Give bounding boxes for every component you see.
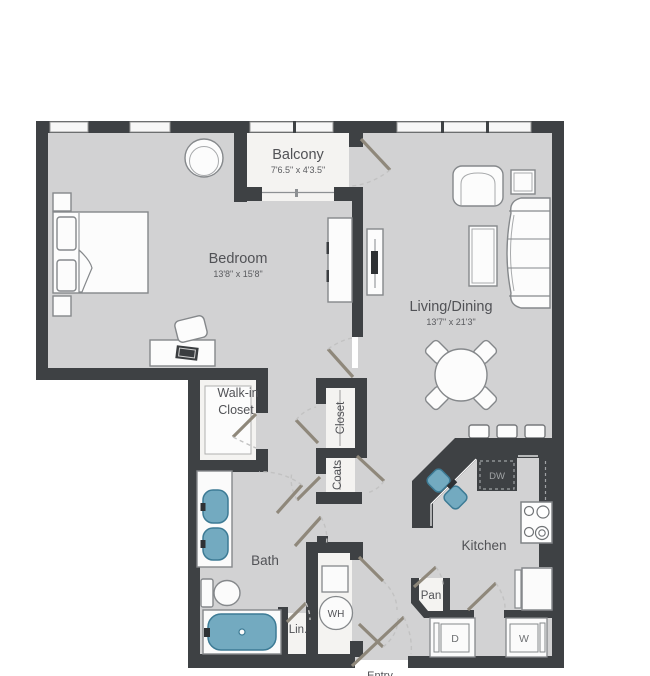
wall-closet-left-stub: [316, 388, 326, 404]
wall-balcony-cap-left: [234, 187, 262, 201]
living-dining-dims: 13'7" x 21'3": [426, 317, 475, 327]
toilet-bowl: [214, 581, 240, 606]
sofa: [507, 198, 550, 308]
window-balcony: [250, 122, 333, 132]
window-living: [397, 122, 531, 132]
bar-stool-3: [525, 425, 545, 438]
coffee-table: [469, 226, 497, 286]
nightstand-bottom: [53, 296, 71, 316]
bedroom-label: Bedroom: [209, 251, 268, 267]
dresser-handle-2: [327, 270, 330, 282]
wall-right: [552, 121, 564, 668]
wall-wh-left: [306, 542, 318, 657]
wall-wic-bottom: [188, 460, 268, 472]
dresser-handle-1: [327, 242, 330, 254]
wh-shelf: [322, 566, 348, 592]
window-living-mullion-1: [441, 121, 444, 133]
bath-sink-2: [203, 528, 228, 560]
dining-set: [424, 339, 498, 411]
pillow-2: [57, 260, 76, 291]
wall-closet-coats-divider: [316, 448, 362, 458]
water-heater-label: WH: [328, 609, 345, 620]
dresser: [328, 218, 352, 302]
round-chair: [185, 139, 223, 177]
bath-sink-1: [203, 490, 228, 523]
window-bedroom-2: [130, 122, 170, 132]
bath-sink-1-faucet: [201, 503, 206, 511]
wall-wh-right-bottom: [350, 641, 363, 657]
window-bedroom-1: [50, 122, 88, 132]
wall-coats-bottom: [316, 492, 362, 504]
nightstand-top: [53, 193, 71, 211]
wall-bottom-right: [408, 656, 564, 668]
walk-in-label-1: Walk-in: [217, 386, 258, 400]
floor-plan-svg: DW D W: [0, 0, 650, 676]
wall-left: [36, 121, 48, 380]
dishwasher-label: DW: [489, 471, 505, 482]
entry-label: Entry: [367, 670, 393, 676]
burner-4: [536, 527, 549, 540]
wall-balcony-right-stub: [349, 121, 363, 147]
dryer-label: D: [451, 633, 459, 645]
burner-3: [525, 528, 534, 537]
window-balcony-mullion: [293, 121, 296, 133]
side-table: [511, 170, 535, 194]
laptop: [175, 345, 198, 361]
refrigerator-door: [515, 570, 521, 608]
walk-in-label-2: Closet: [218, 403, 254, 417]
wall-pantry-right: [443, 578, 450, 611]
window-living-mullion-2: [486, 121, 489, 133]
balcony-railing-post: [295, 189, 298, 197]
pillow-1: [57, 217, 76, 250]
floor-plan: DW D W: [0, 0, 650, 676]
hall-closet-label: Closet: [335, 401, 347, 434]
wall-kitchen-bottom-right: [504, 610, 553, 618]
bath-label: Bath: [251, 553, 279, 568]
tub-drain: [239, 629, 245, 635]
wall-closet-top: [316, 378, 367, 388]
living-dining-label: Living/Dining: [409, 299, 492, 315]
wall-coats-left-stub: [316, 458, 326, 474]
washer-panel: [540, 623, 545, 652]
balcony-dims: 7'6.5" x 4'3.5": [271, 165, 325, 175]
bedroom-dims: 13'8" x 15'8": [213, 269, 262, 279]
washer-label: W: [519, 633, 529, 645]
dryer-panel: [434, 623, 439, 652]
wall-bedroom-bottom: [36, 368, 268, 380]
linen-label: Lin.: [289, 624, 308, 636]
balcony-label: Balcony: [272, 147, 324, 163]
kitchen-label: Kitchen: [461, 538, 506, 553]
coats-label: Coats: [332, 460, 344, 490]
wall-closet-right: [355, 388, 367, 458]
bath-sink-2-faucet: [201, 540, 206, 548]
tv-icon: [371, 251, 378, 274]
burner-2: [537, 506, 549, 518]
bar-stool-1: [469, 425, 489, 438]
wall-bottom-left: [188, 654, 355, 668]
burner-1: [525, 507, 534, 516]
wall-bedroom-living-divider: [352, 195, 363, 337]
pantry-label: Pan: [421, 590, 441, 602]
toilet-tank: [201, 579, 213, 607]
dining-table: [435, 349, 487, 401]
bar-stool-2: [497, 425, 517, 438]
tub-faucet: [204, 628, 210, 637]
refrigerator: [522, 568, 552, 610]
